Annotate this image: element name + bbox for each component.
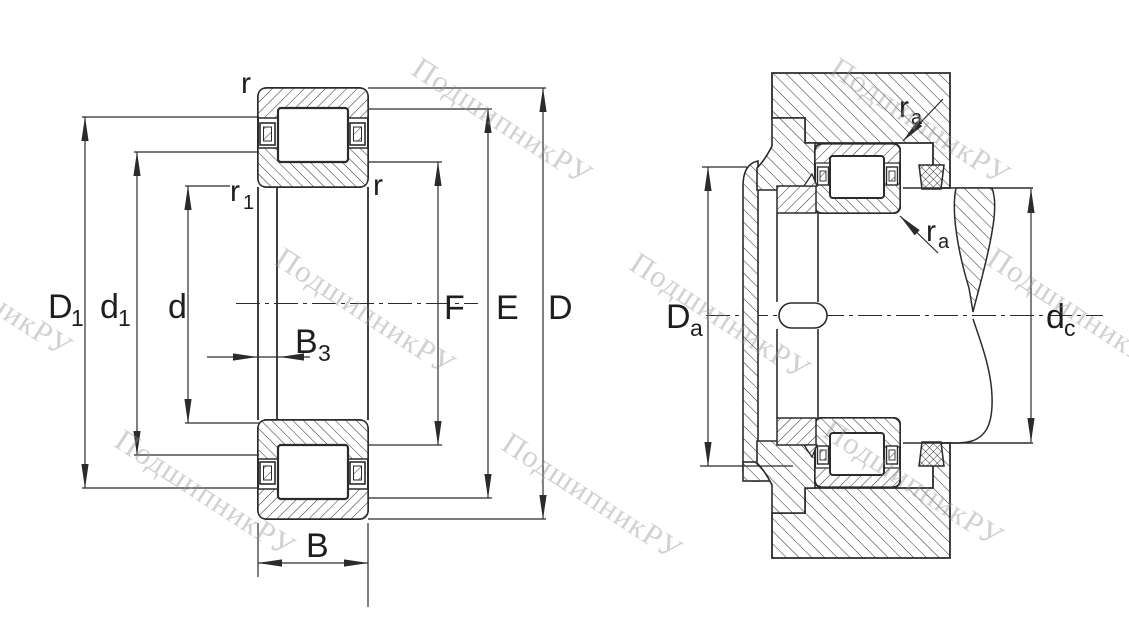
cage-right-bottom-hatch bbox=[354, 466, 362, 480]
bearing-top-section bbox=[258, 88, 368, 187]
label-D: D bbox=[548, 289, 573, 327]
keyway-slot bbox=[779, 303, 827, 328]
left-diagram: r r 1 r D 1 d 1 d B 3 B F E D bbox=[48, 67, 573, 607]
roller-top bbox=[278, 108, 348, 162]
label-r-outer: r bbox=[241, 67, 251, 100]
snap-ring-bottom bbox=[919, 442, 944, 466]
roller-bottom bbox=[278, 445, 348, 499]
label-r1-sub: 1 bbox=[243, 192, 254, 214]
cage-left-bottom-hatch bbox=[264, 466, 272, 480]
mounted-bearing-top bbox=[815, 144, 900, 213]
label-d1-sub: 1 bbox=[118, 305, 131, 331]
roller-top bbox=[830, 156, 884, 198]
cage-right-top-hatch bbox=[354, 127, 362, 141]
cage-left-top-hatch bbox=[264, 127, 272, 141]
label-r1: r bbox=[230, 175, 240, 208]
label-r-inner: r bbox=[373, 169, 383, 202]
drawing-area: r r 1 r D 1 d 1 d B 3 B F E D bbox=[0, 0, 1129, 632]
label-D1-sub: 1 bbox=[71, 305, 84, 331]
bearing-bottom-section bbox=[258, 420, 368, 519]
label-d1: d bbox=[100, 288, 119, 326]
angle-ring-bottom bbox=[777, 418, 816, 445]
label-B3-sub: 3 bbox=[318, 340, 331, 366]
cage-left-bottom-hatch bbox=[820, 450, 826, 460]
cage-left-top-hatch bbox=[820, 171, 826, 181]
angle-ring-top bbox=[777, 186, 816, 213]
label-B3: B bbox=[295, 323, 318, 361]
label-F: F bbox=[444, 289, 465, 327]
cage-right-top-hatch bbox=[889, 171, 895, 181]
snap-ring-top bbox=[919, 165, 944, 189]
label-ra-bottom: r bbox=[926, 215, 936, 248]
shoulder-profile-curve bbox=[950, 319, 992, 443]
label-ra-bottom-sub: a bbox=[938, 231, 950, 253]
bearing-technical-drawing: r r 1 r D 1 d 1 d B 3 B F E D bbox=[0, 0, 1129, 632]
shoulder-fillet-section bbox=[954, 188, 994, 312]
label-B: B bbox=[306, 527, 329, 565]
label-E: E bbox=[496, 289, 519, 327]
label-d: d bbox=[168, 288, 187, 326]
